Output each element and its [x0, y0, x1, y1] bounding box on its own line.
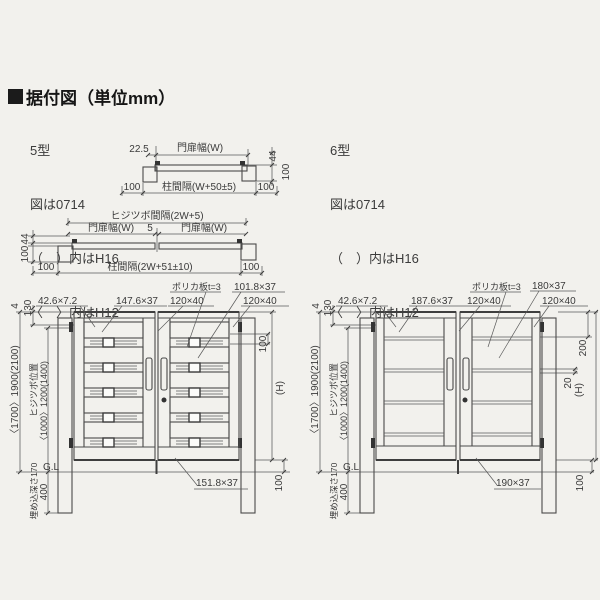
dim-post-depth: 100 — [20, 245, 31, 262]
elev5-dim-lines — [16, 305, 290, 513]
dim-hinge-label: ヒジツボ位置 — [328, 363, 339, 417]
post-right — [542, 318, 556, 513]
ground-line-label: G.L — [43, 462, 60, 473]
installation-diagram: 22.5 門扉幅(W) 44 100 100 柱間隔(W+50±5) 100 ヒ… — [0, 0, 600, 600]
post-left — [58, 318, 72, 513]
installation-drawing-page: 据付図（単位mm） 5型 図は0714 （ ）内はH16 〈 〉内はH12 6型… — [0, 0, 600, 600]
dim-depth: 44 — [268, 150, 279, 162]
label-stile-left: 120×40 — [170, 296, 204, 307]
label-frame-cap: 42.6×7.2 — [338, 296, 378, 307]
hinge-bottom-left — [69, 438, 73, 448]
dim-gate-width-right: 門扉幅(W) — [181, 221, 227, 234]
dim-hinge-height: 〈1000〉1200(1400) — [39, 361, 49, 445]
hinge-top-left — [371, 322, 375, 332]
label-bottom-rail: 151.8×37 — [196, 478, 238, 489]
dim-post-span: 柱間隔(2W+51±10) — [107, 260, 192, 273]
post-right — [241, 318, 255, 513]
gate-leaf-plan-right — [159, 243, 242, 249]
hinge-top-left — [69, 322, 73, 332]
dim-ground-clearance: 100 — [575, 474, 586, 491]
post-left — [360, 318, 374, 513]
dim-total-height: 〈1700〉1900(2100) — [309, 345, 321, 438]
label-stile-right: 120×40 — [243, 296, 277, 307]
hinge-mark — [155, 161, 160, 165]
elevation-type5: 42.6×7.2 147.6×37 120×40 ポリカ板t=3 101.8×3… — [9, 281, 290, 519]
handle-left — [146, 358, 152, 390]
dim-post-span: 柱間隔(W+50±5) — [162, 180, 236, 193]
board-gap-lines — [384, 337, 532, 436]
dim-offset: 22.5 — [129, 144, 149, 155]
dim-pitch: 100 — [258, 335, 269, 352]
label-frame-cap: 42.6×7.2 — [38, 296, 78, 307]
label-upper-board: 147.6×37 — [116, 296, 158, 307]
ground-line-label: G.L — [343, 462, 360, 473]
dim-gate-height: (H) — [275, 381, 286, 395]
handle-right — [463, 358, 469, 390]
label-poly-board: ポリカ板t=3 — [172, 281, 221, 292]
dim-total-height: 〈1700〉1900(2100) — [9, 345, 21, 438]
dim-top-offset: 130 — [323, 299, 334, 316]
dim-top-board: 200 — [578, 339, 589, 356]
gate-leaf-plan-left — [72, 243, 155, 249]
elevation-type6: 42.6×7.2 187.6×37 120×40 ポリカ板t=3 180×37 … — [309, 281, 598, 519]
dim-margin-right: 100 — [258, 182, 275, 193]
label-bottom-rail: 190×37 — [496, 478, 530, 489]
label-stile-left: 120×40 — [467, 296, 501, 307]
latch-mark — [240, 161, 245, 165]
dim-embed-label: 埋め込深さ170 — [329, 462, 339, 519]
dim-post-depth: 100 — [281, 163, 292, 180]
post-plan-left — [58, 246, 73, 262]
post-plan-right — [242, 166, 256, 181]
dim-gate-width-left: 門扉幅(W) — [88, 221, 134, 234]
hinge-mark-left — [72, 239, 77, 243]
dim-embed-depth: 400 — [339, 483, 350, 500]
label-louver-board: 101.8×37 — [234, 282, 276, 293]
handle-right — [161, 358, 167, 390]
dim-margin-left: 100 — [38, 262, 55, 273]
hinge-top-right — [540, 322, 544, 332]
dim-top-offset: 130 — [23, 299, 34, 316]
label-stile-right: 120×40 — [542, 296, 576, 307]
dim-gate-height: (H) — [574, 383, 585, 397]
dim-margin-left: 100 — [124, 182, 141, 193]
hinge-bottom-left — [371, 438, 375, 448]
drop-bolt-knob — [162, 398, 167, 403]
gate-frame-lines — [74, 318, 239, 447]
dim-ground-clearance: 100 — [274, 474, 285, 491]
dim-cap: 4 — [311, 303, 322, 309]
handle-left — [447, 358, 453, 390]
dim-embed-label: 埋め込深さ170 — [29, 462, 39, 519]
dim-margin-right: 100 — [243, 262, 260, 273]
drop-bolt-knob — [463, 398, 468, 403]
hinge-mark-right — [237, 239, 242, 243]
post-plan-right — [241, 244, 256, 260]
label-upper-board: 187.6×37 — [411, 296, 453, 307]
gate-rails-thick — [376, 312, 540, 460]
dim-hinge-height: 〈1000〉1200(1400) — [339, 361, 349, 445]
plan-view-double: ヒジツボ間隔(2W+5) 門扉幅(W) 5 門扉幅(W) 44 100 100 … — [20, 210, 264, 276]
louver-clips — [103, 338, 200, 447]
dim-board-gap: 20 — [563, 377, 574, 389]
dim-cap: 4 — [10, 303, 21, 309]
dim-hinge-span: ヒジツボ間隔(2W+5) — [110, 210, 203, 222]
gate-leaf-plan — [155, 165, 247, 171]
dim-center-gap: 5 — [147, 223, 153, 234]
label-poly-board: ポリカ板t=3 — [472, 281, 521, 292]
dim-hinge-label: ヒジツボ位置 — [28, 363, 39, 417]
dim-embed-depth: 400 — [39, 483, 50, 500]
dim-gate-width: 門扉幅(W) — [177, 141, 223, 154]
hinge-bottom-right — [540, 438, 544, 448]
dim-depth: 44 — [20, 233, 31, 245]
label-louver-board: 180×37 — [532, 281, 566, 292]
plan-view-single: 22.5 門扉幅(W) 44 100 100 柱間隔(W+50±5) 100 — [120, 141, 292, 196]
